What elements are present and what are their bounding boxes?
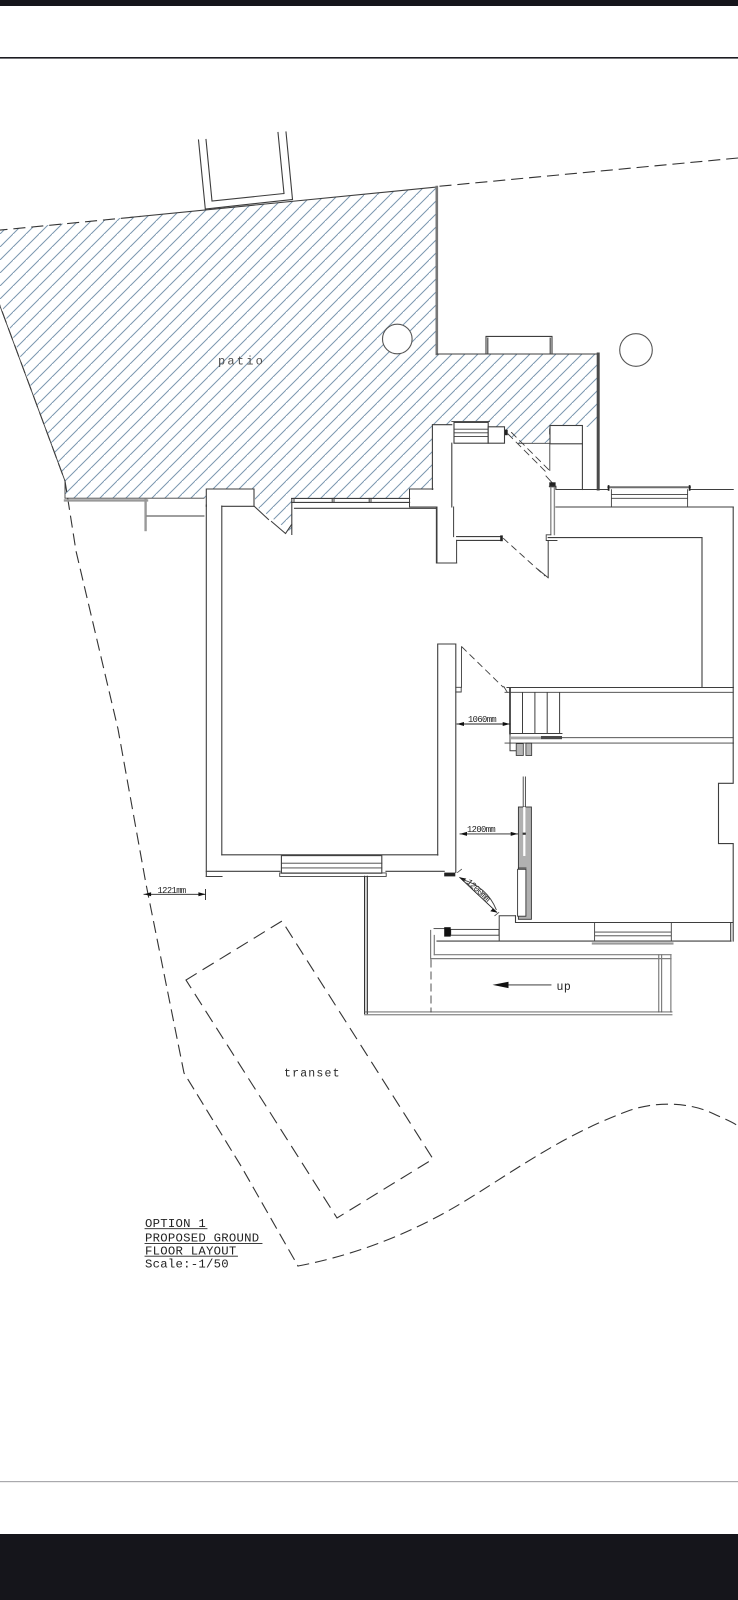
svg-text:1221mm: 1221mm [158, 886, 186, 896]
svg-text:Scale:-1/50: Scale:-1/50 [145, 1258, 229, 1272]
svg-text:transet: transet [284, 1068, 341, 1081]
svg-text:up: up [557, 981, 572, 994]
svg-text:1060mm: 1060mm [468, 715, 496, 725]
svg-text:1200mm: 1200mm [467, 825, 495, 835]
svg-text:patio: patio [218, 355, 265, 369]
